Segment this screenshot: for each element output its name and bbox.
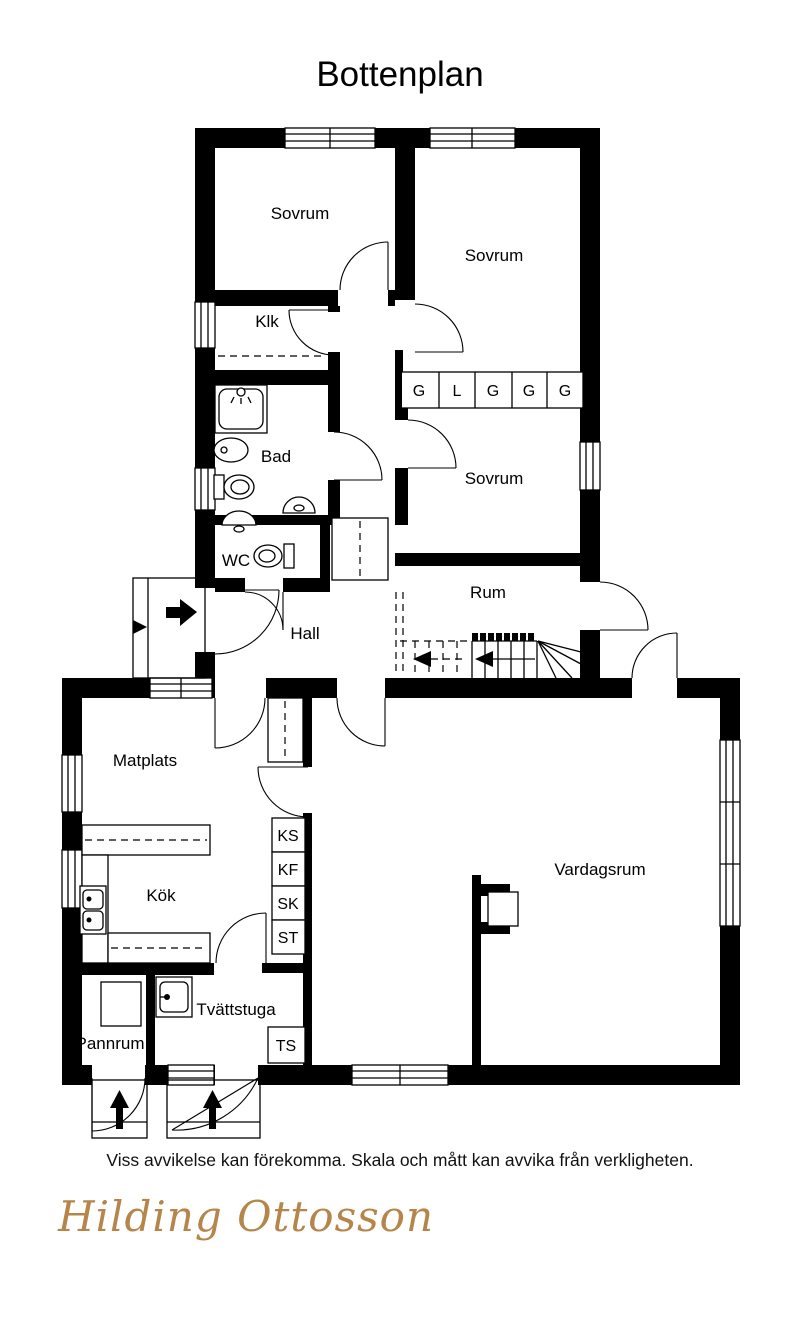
room-label-klk: Klk [255,312,279,331]
window [285,128,375,148]
washbasin-fixture [222,511,256,532]
appliance-label-ts: TS [276,1038,296,1055]
room-label-sovrum-3: Sovrum [465,469,524,488]
window [195,468,215,510]
porches [92,578,260,1138]
entry-arrow-icon [166,599,197,626]
washbasin-fixture [283,497,315,513]
room-label-tvattstuga: Tvättstuga [196,1000,276,1019]
window [720,740,740,926]
window [580,442,600,490]
floor-plan-page: Bottenplan [0,0,800,1318]
appliance-label-ks: KS [277,828,298,845]
room-label-sovrum-2: Sovrum [465,246,524,265]
room-label-rum: Rum [470,583,506,602]
disclaimer-text: Viss avvikelse kan förekomma. Skala och … [0,1150,800,1171]
furniture [82,356,583,1063]
window [195,302,215,348]
wardrobe-label: G [413,383,425,400]
window [150,678,212,698]
laundry-sink-fixture [156,977,192,1017]
wardrobe-label: G [559,383,571,400]
appliance-label-kf: KF [278,862,299,879]
stair-direction-arrow-icon [413,651,466,667]
staircase [396,592,581,678]
room-label-bad: Bad [261,447,291,466]
room-label-hall: Hall [290,624,319,643]
toilet-fixture [214,475,254,499]
entrance-porch [133,578,205,678]
room-label-matplats: Matplats [113,751,177,770]
floor-plan-drawing: Sovrum Sovrum Sovrum Klk Bad WC Hall Rum… [0,0,800,1318]
entry-arrow-icon [110,1090,129,1129]
window [430,128,515,148]
appliance-label-st: ST [278,930,299,947]
room-label-kok: Kök [146,886,176,905]
appliance-label-sk: SK [277,896,299,913]
stair-direction-arrow-icon [475,651,535,667]
window [352,1065,448,1085]
shower-fixture [215,385,267,433]
room-label-pannrum: Pannrum [76,1034,145,1053]
company-logo: Hilding Ottosson [58,1192,434,1241]
wardrobe-label: G [487,383,499,400]
interior-walls [62,148,600,1065]
closet [268,698,303,762]
kitchen-sink-fixture [80,886,106,934]
window [168,1065,214,1085]
toilet-fixture [254,544,294,568]
room-label-sovrum-1: Sovrum [271,204,330,223]
room-label-wc: WC [222,551,250,570]
wardrobe-label: L [453,383,462,400]
boiler-fixture [101,982,141,1026]
entry-arrow-icon [133,620,147,634]
window [62,755,82,812]
room-label-vardagsrum: Vardagsrum [554,860,645,879]
hall-cabinet [332,518,388,580]
room-labels: Sovrum Sovrum Sovrum Klk Bad WC Hall Rum… [76,204,646,1055]
pannrum-porch [92,1080,147,1138]
tvattstuga-porch [167,1080,260,1138]
washbasin-fixture [214,438,248,462]
window [62,850,82,908]
wardrobe-label: G [523,383,535,400]
